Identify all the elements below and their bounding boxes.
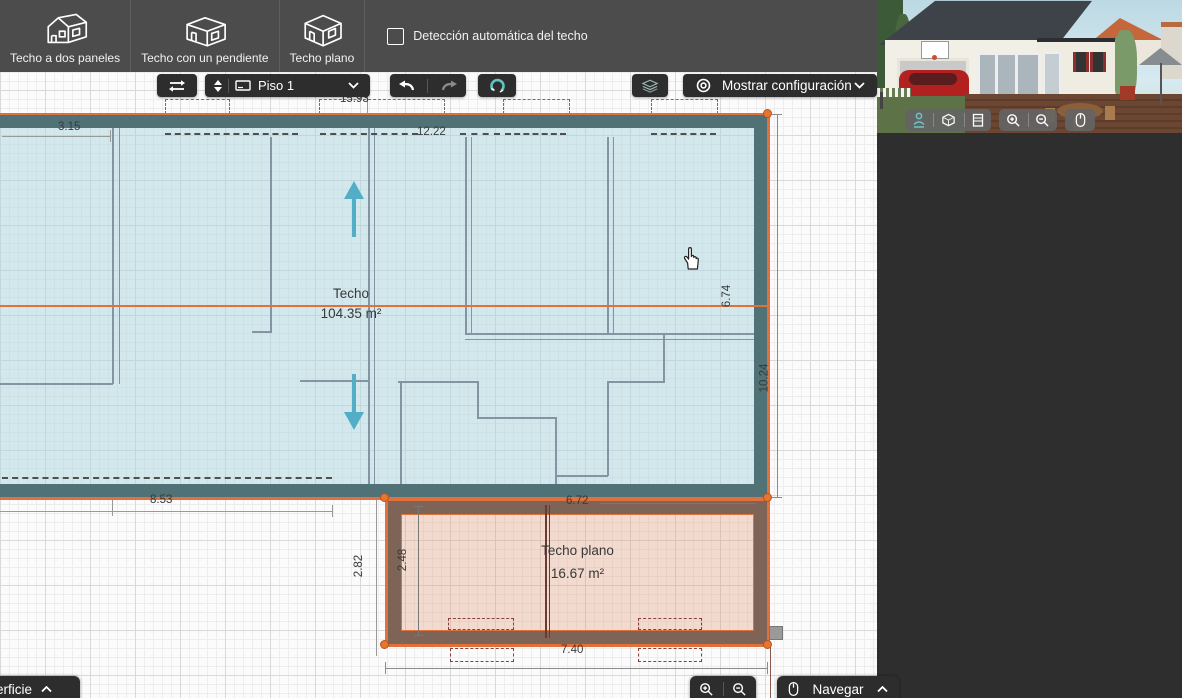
main-roof-label: Techo [316,286,386,301]
roof-editor-app: { "top_toolbar": { "buttons": [ {"label"… [0,0,1182,698]
roof-type-toolbar: Techo a dos paneles Techo con un pendien… [0,0,877,72]
chevron-up-icon [41,686,52,693]
chevron-up-icon [877,686,888,693]
roof-type-gable-button[interactable]: Techo a dos paneles [0,0,131,72]
roof-type-single-slope-button[interactable]: Techo con un pendiente [131,0,279,72]
hand-cursor [680,246,703,271]
roof-corner-handle[interactable] [380,640,389,649]
roof-corner-handle[interactable] [763,493,772,502]
roof-corner-handle[interactable] [763,109,772,118]
patio-chair [1105,106,1115,120]
lamp-post [880,92,883,109]
neighbor-building [1161,22,1182,79]
dashed-roof-line [651,133,716,135]
dashed-roof-line [165,133,298,135]
magnet-icon [489,78,506,94]
auto-detect-label: Detección automática del techo [413,29,587,43]
dimension-line [414,506,423,507]
layers-button[interactable] [632,74,668,97]
magnet-snap-button[interactable] [478,74,516,97]
dimension-line [0,511,333,512]
window-marker [651,99,718,114]
dimension-line [772,114,782,115]
shuttered-window [1073,52,1089,72]
main-roof-area: 104.35 m² [306,306,396,321]
navigate-button[interactable]: Navegar [777,676,899,698]
shuttered-window [1090,52,1106,72]
window-marker [450,648,514,662]
dimension-line [770,645,771,698]
dimension-label: 2.48 [397,549,409,571]
elevation-view-icon[interactable] [972,113,984,128]
window-marker [503,99,570,114]
window-marker [448,618,514,630]
slope-arrow-up-head [344,181,364,199]
roof-corner-handle[interactable] [763,640,772,649]
dimension-line [112,500,113,516]
car-windshield [909,73,957,85]
dimension-label: 10.24 [758,364,770,393]
flat-roof-area: 16.67 m² [530,566,625,581]
roof-corner-handle[interactable] [380,493,389,502]
entry-door [1043,52,1061,96]
window-marker [638,618,702,630]
undo-icon[interactable] [396,79,416,93]
basketball-hoop [932,55,937,60]
dashed-roof-line [460,133,500,135]
preview-pan-tool [1065,109,1095,131]
floor-stepper[interactable] [214,80,222,92]
navigate-label: Navegar [812,682,863,697]
chevron-down-icon [348,82,359,89]
dimension-line [385,662,386,674]
dimension-line [110,130,111,142]
dimension-line [777,114,778,498]
dimension-label: 12.22 [417,126,446,138]
show-config-button[interactable]: Mostrar configuración [683,74,877,97]
dimension-line [414,635,423,636]
swap-icon [168,79,186,93]
dimension-line [600,503,756,504]
door-frame [995,52,998,96]
eye-icon [695,78,712,93]
slope-arrow-down-head [344,412,364,430]
door-marker [769,626,783,640]
dimension-label: 8.53 [150,494,172,506]
zoom-out-icon[interactable] [1035,113,1050,128]
redo-icon[interactable] [440,79,460,93]
flat-roof-label: Techo plano [520,543,635,558]
umbrella-pole [1160,63,1162,105]
slope-arrow-down [352,374,356,412]
canvas-zoom-controls [690,676,756,698]
window-marker [638,648,702,662]
dimension-label: 2.82 [353,555,365,577]
roof-type-label: Techo a dos paneles [10,51,120,65]
roof-type-label: Techo plano [290,51,355,65]
gable-roof-house-icon [38,10,92,48]
layers-icon [640,78,660,94]
floor-selector-label: Piso 1 [258,78,294,93]
flat-roof-house-icon [295,10,349,48]
red-chair [1120,86,1135,100]
dashed-roof-line [320,133,418,135]
door-frame [1015,52,1018,96]
undo-redo-group [390,74,466,97]
single-slope-roof-house-icon [178,10,232,48]
dimension-label: 3.15 [58,121,80,133]
floor-icon [235,80,251,91]
dimension-line [772,497,782,498]
auto-detect-checkbox[interactable] [387,28,404,45]
surface-panel-label: Superficie [0,682,32,697]
preview-zoom-tools [999,109,1057,131]
dimension-line [376,500,377,656]
preview-view-tools [905,109,991,131]
swap-roof-button[interactable] [157,74,197,97]
dimension-line [332,505,333,517]
zoom-in-icon[interactable] [699,682,714,697]
dashed-roof-line [2,477,332,479]
surface-panel-button[interactable]: Superficie [0,676,80,698]
zoom-out-icon[interactable] [732,682,747,697]
floor-plan-canvas[interactable]: Techo 104.35 m² Techo plano 16.67 m² 3.1… [0,0,877,698]
dashed-roof-line [505,133,566,135]
dimension-line [2,136,110,137]
floor-selector[interactable]: Piso 1 [205,74,370,97]
show-config-label: Mostrar configuración [722,78,852,93]
dimension-label: 6.74 [721,285,733,307]
roof-type-flat-button[interactable]: Techo plano [280,0,366,72]
dimension-label: 6.72 [566,495,588,507]
orbit-3d-icon[interactable] [941,113,956,128]
chevron-down-icon [854,82,865,89]
dimension-line [385,668,768,669]
step-up-icon [214,80,222,85]
window-marker [165,99,230,114]
window-marker [319,99,445,114]
zoom-in-icon[interactable] [1006,113,1021,128]
dimension-line [767,662,768,674]
dimension-line [418,506,419,636]
slope-arrow-up [352,199,356,237]
step-down-icon [214,87,222,92]
mouse-icon[interactable] [1075,112,1086,128]
mouse-icon [788,681,799,697]
first-person-icon[interactable] [912,112,926,128]
right-panel [877,0,1182,698]
auto-detect-roof-option: Detección automática del techo [387,0,587,72]
roof-type-label: Techo con un pendiente [141,51,268,65]
dimension-label: 7.40 [561,644,583,656]
